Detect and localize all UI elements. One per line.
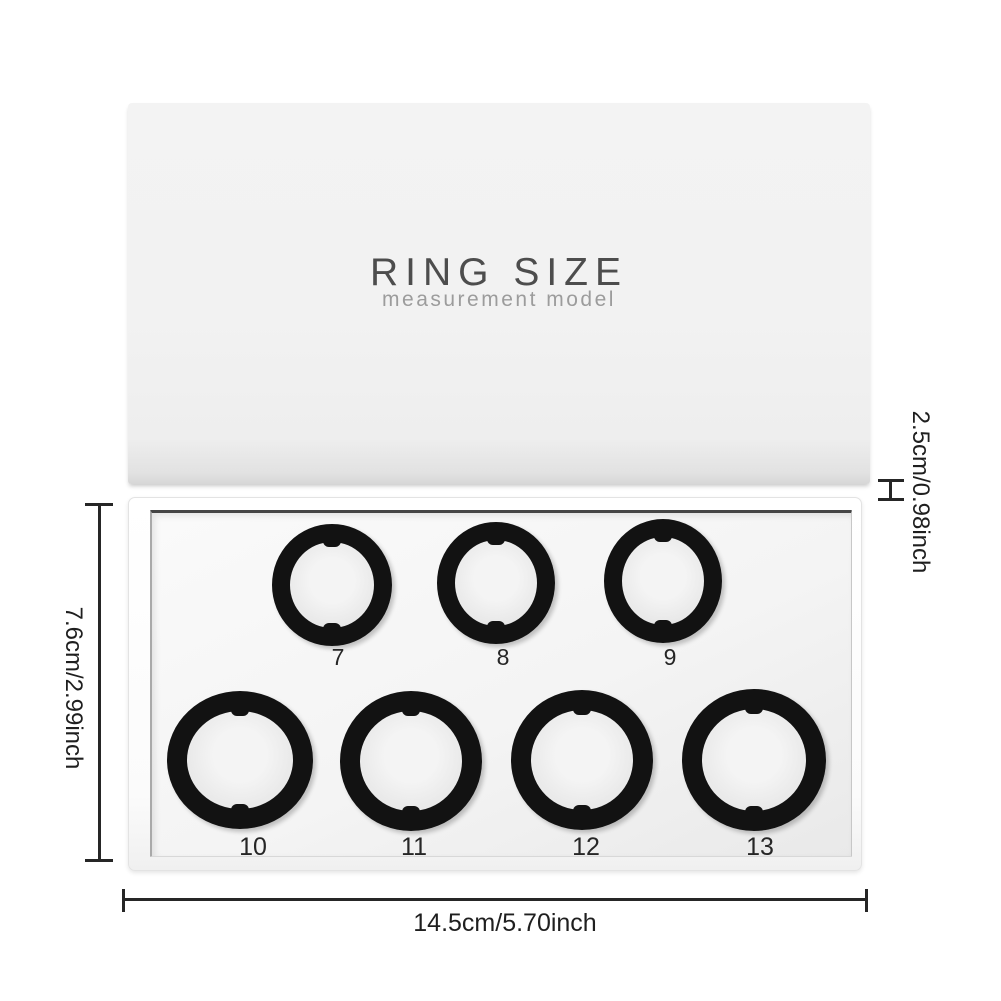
ring-10 <box>167 691 313 829</box>
width-dimension-cap-right <box>865 889 868 912</box>
lid-height-bracket-cap-bottom <box>878 498 904 501</box>
lid-height-bracket-cap-top <box>878 479 904 482</box>
ring-size-label-8: 8 <box>473 646 533 669</box>
ring-size-label-9: 9 <box>640 646 700 669</box>
lid-title: RING SIZE <box>128 253 870 292</box>
ring-size-label-11: 11 <box>384 835 444 860</box>
ring-8 <box>437 522 555 644</box>
ring-7 <box>272 524 392 646</box>
lid-subtitle: measurement model <box>128 289 870 310</box>
product-photo: RING SIZE measurement model 7 8 9 10 11 … <box>0 0 1001 1001</box>
ring-13 <box>682 689 826 831</box>
ring-size-label-7: 7 <box>308 646 368 669</box>
width-dimension-label: 14.5cm/5.70inch <box>355 910 655 936</box>
width-dimension-cap-left <box>122 889 125 912</box>
ring-11 <box>340 691 482 831</box>
height-dimension-label: 7.6cm/2.99inch <box>60 587 86 789</box>
ring-12 <box>511 690 653 830</box>
ring-size-label-13: 13 <box>730 835 790 860</box>
height-dimension-cap-bottom <box>85 859 113 862</box>
lid-height-dimension-label: 2.5cm/0.98inch <box>907 392 933 592</box>
height-dimension-cap-top <box>85 503 113 506</box>
width-dimension-line <box>122 898 868 901</box>
box-base: 7 8 9 10 11 12 13 <box>128 497 862 871</box>
ring-9 <box>604 519 722 643</box>
height-dimension-line <box>98 503 101 862</box>
box-lid: RING SIZE measurement model <box>128 103 870 484</box>
ring-size-label-10: 10 <box>223 835 283 860</box>
ring-size-label-12: 12 <box>556 835 616 860</box>
